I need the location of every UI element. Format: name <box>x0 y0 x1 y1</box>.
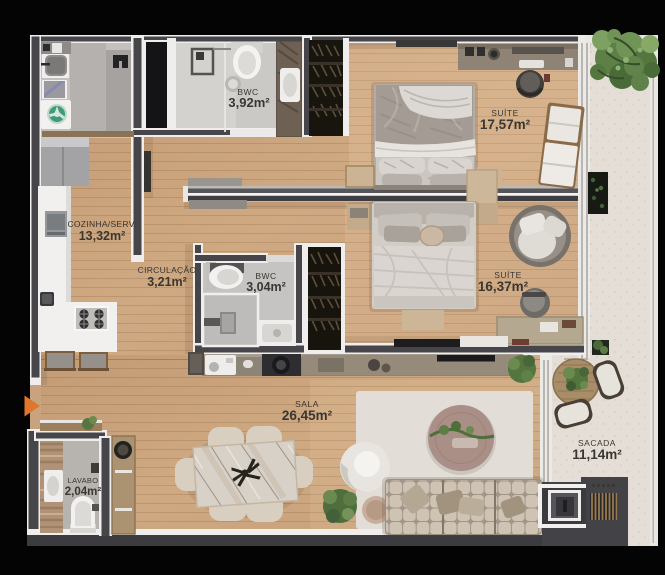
svg-text:17,57m²: 17,57m² <box>480 117 531 132</box>
svg-text:13,32m²: 13,32m² <box>79 229 126 243</box>
svg-text:3,21m²: 3,21m² <box>147 275 187 289</box>
svg-text:COZINHA/SERV.: COZINHA/SERV. <box>67 219 136 229</box>
svg-text:2,04m²: 2,04m² <box>65 486 102 498</box>
svg-text:16,37m²: 16,37m² <box>478 279 529 294</box>
svg-text:26,45m²: 26,45m² <box>282 408 333 423</box>
svg-text:CIRCULAÇÃO: CIRCULAÇÃO <box>138 265 197 275</box>
svg-text:3,04m²: 3,04m² <box>246 280 286 294</box>
svg-text:LAVABO: LAVABO <box>68 476 99 485</box>
svg-text:3,92m²: 3,92m² <box>228 95 270 110</box>
svg-text:11,14m²: 11,14m² <box>572 447 622 462</box>
